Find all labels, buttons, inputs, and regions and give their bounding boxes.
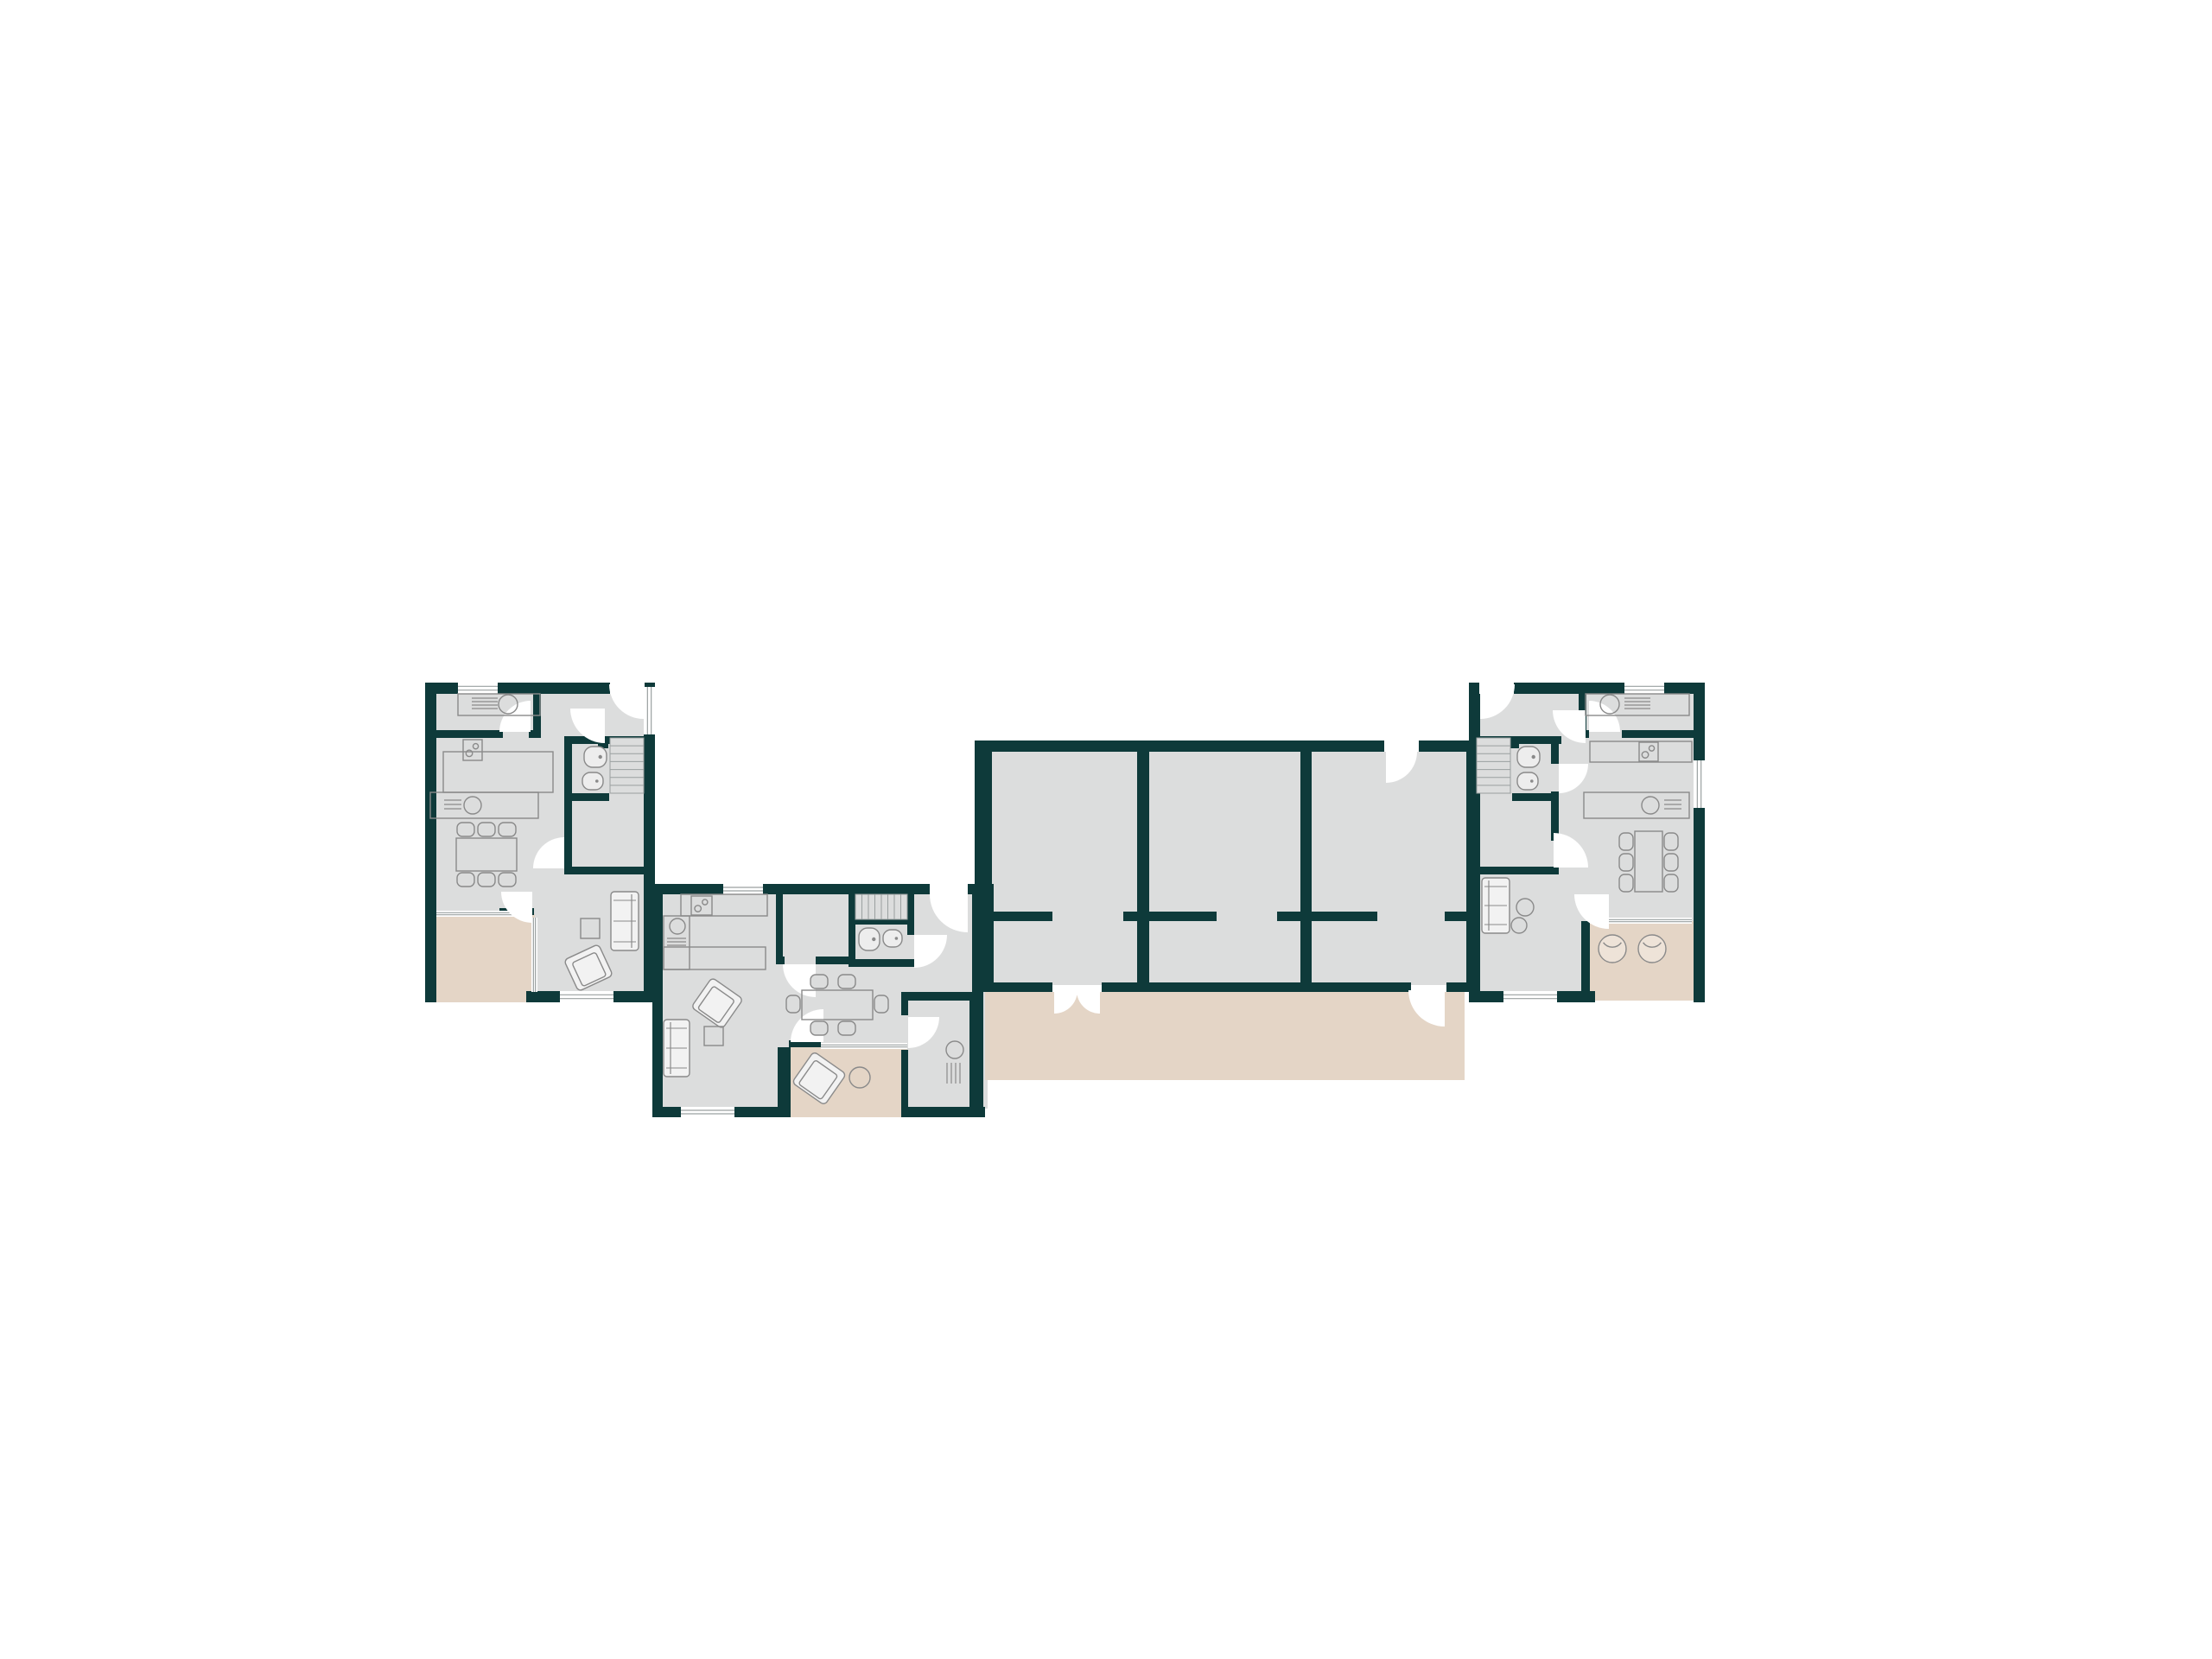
- left-terrace-side-glass: [531, 918, 537, 992]
- middle-chair-3: [810, 1021, 828, 1035]
- wall: [849, 893, 855, 964]
- wall: [1581, 921, 1590, 991]
- wall: [1149, 912, 1217, 921]
- middle-terrace-slider: [821, 1043, 907, 1049]
- right-chair-4: [1664, 833, 1678, 850]
- wall: [1694, 683, 1705, 1002]
- wall: [1510, 736, 1519, 748]
- wall: [564, 736, 572, 801]
- right-terrace-chair-1: [1599, 935, 1626, 963]
- wall: [1694, 991, 1705, 1002]
- left-chair-1: [457, 823, 474, 836]
- middle-chair-1: [810, 975, 828, 988]
- left-unit-terrace: [436, 914, 535, 1002]
- wall: [901, 1050, 908, 1117]
- wall: [425, 991, 436, 1002]
- flush-dot: [872, 938, 875, 941]
- left-chair-4: [457, 873, 474, 887]
- wall: [1469, 683, 1480, 1002]
- wall: [1277, 912, 1300, 921]
- wall: [1300, 752, 1312, 985]
- middle-toilet: [859, 928, 880, 950]
- middle-entrance-gap: [930, 884, 968, 894]
- right-unit-terrace: [1586, 921, 1694, 1001]
- right-chair-3: [1619, 874, 1633, 892]
- left-top-window: [458, 683, 498, 694]
- wall: [1475, 867, 1559, 874]
- middle-bottom-window: [681, 1107, 734, 1117]
- wall: [652, 884, 663, 1117]
- right-bottom-window: [1503, 991, 1557, 1002]
- right-top-window: [1624, 683, 1664, 694]
- left-chair-2: [478, 823, 495, 836]
- left-toilet: [584, 747, 607, 767]
- right-side-window: [1694, 760, 1705, 808]
- floor-plan-page: [0, 0, 2212, 1659]
- wall: [1622, 730, 1694, 738]
- middle-chair-6: [874, 995, 888, 1013]
- middle-chair-4: [838, 1021, 855, 1035]
- wall: [1551, 791, 1559, 801]
- right-washbasin: [1517, 772, 1538, 790]
- wall: [901, 992, 972, 1001]
- right-terrace-chair-2: [1638, 935, 1666, 963]
- right-chair-6: [1664, 874, 1678, 892]
- wall: [564, 801, 572, 870]
- wall: [425, 683, 436, 1002]
- wall: [1123, 912, 1137, 921]
- wall: [969, 992, 983, 1117]
- wall: [992, 912, 1052, 921]
- wall: [778, 1047, 791, 1117]
- left-chair-3: [499, 823, 516, 836]
- left-chair-5: [478, 873, 495, 887]
- drain-dot: [1530, 779, 1534, 783]
- left-bottom-window: [560, 991, 613, 1002]
- wall: [985, 982, 1052, 992]
- center-block-floor: [992, 752, 1466, 985]
- wall: [975, 741, 992, 992]
- flush-dot: [1532, 755, 1535, 759]
- middle-chair-2: [838, 975, 855, 988]
- left-washbasin: [582, 772, 603, 790]
- wall: [907, 893, 914, 935]
- right-chair-1: [1619, 833, 1633, 850]
- drain-dot: [895, 937, 899, 940]
- middle-washbasin: [883, 930, 902, 947]
- wall: [849, 959, 914, 967]
- wall: [564, 793, 609, 801]
- right-toilet: [1517, 747, 1540, 767]
- wall: [564, 867, 644, 874]
- wall: [1445, 912, 1466, 921]
- right-chair-2: [1619, 854, 1633, 871]
- center-backdoor-gap: [1384, 741, 1419, 752]
- right-chair-5: [1664, 854, 1678, 871]
- floor-plan-svg: [0, 0, 2212, 1659]
- left-side-window: [644, 687, 655, 734]
- wall: [1551, 736, 1559, 764]
- wall: [436, 730, 503, 738]
- wall: [1102, 982, 1411, 992]
- wall: [776, 957, 785, 964]
- wall: [1137, 752, 1149, 985]
- flush-dot: [599, 755, 602, 759]
- wall: [776, 893, 783, 963]
- middle-chair-5: [786, 995, 800, 1013]
- wall: [901, 992, 908, 1015]
- wall: [1312, 912, 1377, 921]
- drain-dot: [595, 779, 599, 783]
- left-chair-6: [499, 873, 516, 887]
- wall: [849, 919, 914, 925]
- middle-top-window: [723, 884, 763, 894]
